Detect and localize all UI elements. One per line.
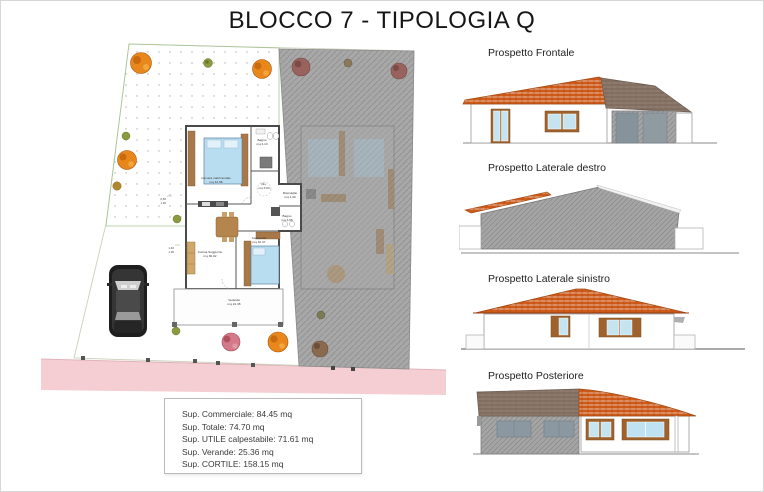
room-label: Camerettamq 10.37: [252, 236, 267, 244]
window: [545, 111, 579, 132]
elevation-label-destro: Prospetto Laterale destro: [488, 162, 606, 174]
veranda: [172, 289, 283, 327]
elevation-label-frontale: Prospetto Frontale: [488, 47, 574, 59]
roof-orange: [475, 289, 687, 313]
tree-icon: [173, 215, 181, 223]
room-label: Bagnomq 4.13: [256, 138, 267, 146]
room-label: Bagnomq 3.96: [281, 214, 292, 222]
porch-column: [675, 416, 678, 452]
room-label: Ripostigliomq 1.30: [283, 191, 298, 199]
elevation-label-sinistro: Prospetto Laterale sinistro: [488, 273, 610, 285]
window: [586, 419, 614, 440]
tree-icon: [172, 327, 180, 335]
window: [599, 318, 641, 337]
svg-text:1.30: 1.30: [160, 201, 166, 205]
summary-line: Sup. CORTILE: 158.15 mq: [182, 458, 361, 471]
elevation-frontale: [459, 61, 749, 153]
room-label: Verandamq 21.38: [228, 298, 241, 306]
window: [622, 419, 669, 440]
car-icon: [107, 265, 149, 337]
summary-line: Sup. Commerciale: 84.45 mq: [182, 408, 361, 421]
roof-orange: [579, 389, 696, 416]
elevation-laterale-destro: [459, 177, 749, 269]
site-plan: Camera matrimonialemq 12.98 Bagnomq 4.13…: [36, 39, 446, 411]
door: [491, 109, 510, 143]
drawing-sheet: BLOCCO 7 - TIPOLOGIA Q: [0, 0, 764, 492]
tree-icon: [118, 151, 137, 170]
tree-icon: [268, 332, 288, 352]
tree-icon: [317, 311, 325, 319]
tree-icon: [391, 63, 407, 79]
svg-text:1.30: 1.30: [168, 250, 174, 254]
tree-icon: [122, 132, 130, 140]
window: [551, 316, 570, 337]
elevation-laterale-sinistro: [459, 285, 749, 367]
tree-icon: [131, 53, 152, 74]
elevation-posteriore: [459, 381, 749, 468]
roof-gray: [477, 389, 579, 416]
summary-line: Sup. Verande: 25.36 mq: [182, 446, 361, 459]
tree-icon: [222, 333, 240, 351]
page-title: BLOCCO 7 - TIPOLOGIA Q: [1, 7, 763, 35]
area-summary-box: Sup. Commerciale: 84.45 mq Sup. Totale: …: [164, 398, 362, 474]
tree-icon: [253, 60, 272, 79]
roof-gray: [601, 78, 691, 112]
tree-icon: [312, 341, 328, 357]
tree-icon: [204, 59, 213, 68]
tree-icon: [113, 182, 121, 190]
roof-orange: [463, 77, 607, 104]
tree-icon: [292, 58, 310, 76]
tree-icon: [344, 59, 352, 67]
summary-line: Sup. UTILE calpestabile: 71.61 mq: [182, 433, 361, 446]
gable-gray: [481, 187, 679, 249]
summary-line: Sup. Totale: 74.70 mq: [182, 421, 361, 434]
